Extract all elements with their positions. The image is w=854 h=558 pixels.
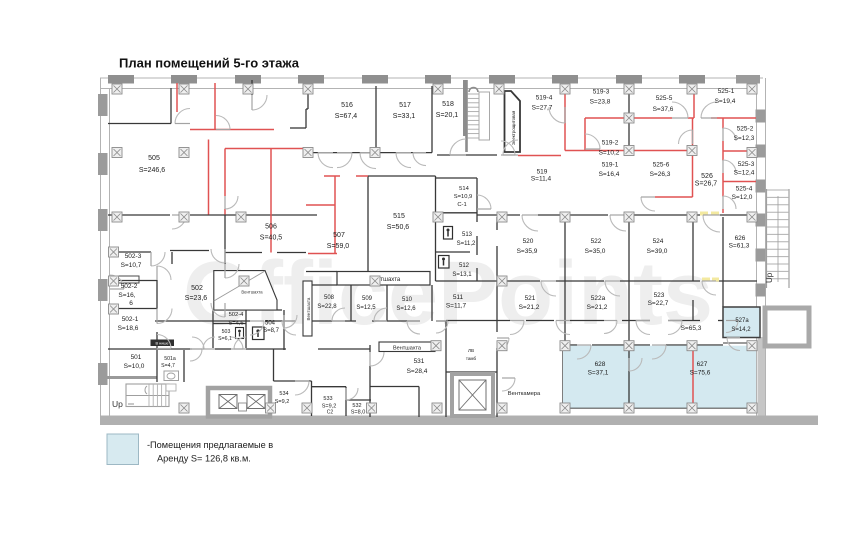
svg-text:532: 532	[352, 403, 361, 409]
svg-text:502-2: 502-2	[121, 283, 138, 290]
svg-text:Up: Up	[112, 399, 123, 409]
svg-text:S=37,1: S=37,1	[588, 370, 609, 377]
svg-text:522а: 522а	[591, 295, 606, 302]
svg-text:525-5: 525-5	[656, 95, 673, 102]
svg-text:525-2: 525-2	[737, 126, 754, 133]
svg-text:514: 514	[459, 186, 469, 192]
svg-text:S=14,2: S=14,2	[731, 327, 751, 333]
svg-text:S=37,6: S=37,6	[653, 106, 674, 113]
svg-text:510: 510	[402, 297, 413, 303]
svg-text:S=11,2: S=11,2	[457, 241, 476, 247]
svg-text:План помещений 5-го этажа: План помещений 5-го этажа	[119, 56, 300, 71]
svg-text:519-3: 519-3	[593, 89, 610, 96]
svg-text:S=8,0: S=8,0	[351, 410, 366, 416]
svg-text:527а: 527а	[735, 318, 749, 324]
svg-text:533: 533	[323, 396, 332, 402]
svg-text:S=39,0: S=39,0	[647, 248, 668, 255]
svg-text:531: 531	[414, 358, 425, 365]
svg-text:516: 516	[341, 102, 353, 109]
svg-text:519-4: 519-4	[536, 95, 553, 102]
svg-text:S=16,: S=16,	[118, 292, 135, 299]
svg-text:S=12,3: S=12,3	[734, 135, 755, 142]
svg-text:S=27,7: S=27,7	[532, 105, 553, 112]
svg-text:519: 519	[537, 169, 548, 176]
svg-text:S=6,1: S=6,1	[218, 336, 232, 342]
svg-text:S=40,5: S=40,5	[260, 235, 282, 242]
svg-text:S=10,2: S=10,2	[599, 150, 620, 157]
svg-text:521: 521	[525, 295, 536, 302]
svg-text:S=12,5: S=12,5	[356, 305, 376, 311]
svg-text:S=10,0: S=10,0	[124, 363, 145, 370]
svg-text:519-2: 519-2	[602, 140, 619, 147]
svg-text:ЛВ: ЛВ	[468, 348, 474, 353]
svg-text:506: 506	[265, 224, 277, 231]
svg-text:626: 626	[735, 235, 746, 242]
svg-text:525-4: 525-4	[736, 186, 753, 193]
svg-text:502-4: 502-4	[229, 312, 245, 318]
svg-text:S=12,4: S=12,4	[734, 170, 755, 177]
svg-text:S=26,3: S=26,3	[650, 171, 671, 178]
svg-text:522: 522	[591, 238, 602, 245]
svg-text:S=12,6: S=12,6	[396, 306, 416, 312]
svg-text:S=26,7: S=26,7	[695, 181, 717, 188]
svg-text:S=23,8: S=23,8	[590, 99, 611, 106]
svg-text:519-1: 519-1	[602, 162, 619, 169]
svg-text:627: 627	[697, 361, 708, 368]
svg-text:S=23,6: S=23,6	[185, 295, 207, 302]
svg-text:S=10,9: S=10,9	[454, 194, 473, 200]
svg-text:S=12,0: S=12,0	[732, 194, 753, 201]
svg-text:S=35,9: S=35,9	[517, 248, 538, 255]
svg-text:S=61,3: S=61,3	[729, 243, 750, 250]
svg-text:525-3: 525-3	[738, 161, 755, 168]
svg-text:523: 523	[654, 292, 665, 299]
svg-text:S=33,1: S=33,1	[393, 113, 415, 120]
svg-text:тамб: тамб	[466, 356, 477, 361]
svg-text:S=65,3: S=65,3	[681, 325, 702, 332]
svg-text:509: 509	[362, 296, 373, 302]
svg-text:S=75,6: S=75,6	[690, 370, 711, 377]
svg-text:S=21,2: S=21,2	[587, 304, 608, 311]
svg-text:S=67,4: S=67,4	[335, 113, 357, 120]
svg-text:S=4,6: S=4,6	[228, 321, 243, 327]
svg-text:S=8,7: S=8,7	[263, 328, 280, 334]
svg-text:В нише: В нише	[156, 342, 169, 346]
svg-text:Вентшахта: Вентшахта	[306, 297, 311, 320]
svg-text:С2: С2	[327, 410, 334, 416]
svg-text:524: 524	[653, 238, 664, 245]
svg-text:S=11,7: S=11,7	[446, 303, 467, 310]
svg-text:628: 628	[595, 361, 606, 368]
svg-text:S=50,6: S=50,6	[387, 224, 409, 231]
svg-text:S=11,4: S=11,4	[531, 176, 552, 183]
svg-text:S=35,0: S=35,0	[585, 248, 606, 255]
svg-text:504: 504	[265, 321, 276, 327]
svg-text:501: 501	[131, 354, 142, 361]
svg-text:S=10,7: S=10,7	[121, 262, 142, 269]
svg-text:S=13,1: S=13,1	[452, 272, 472, 278]
svg-text:525-6: 525-6	[653, 162, 670, 169]
svg-text:502-3: 502-3	[125, 253, 142, 260]
svg-text:Аренду S= 126,8 кв.м.: Аренду S= 126,8 кв.м.	[157, 454, 251, 464]
svg-text:502: 502	[191, 285, 203, 292]
svg-text:S=9,2: S=9,2	[275, 399, 290, 405]
svg-text:517: 517	[399, 102, 411, 109]
svg-text:Венткамера: Венткамера	[508, 391, 541, 397]
svg-text:S=16,4: S=16,4	[599, 171, 620, 178]
svg-text:508: 508	[324, 295, 335, 301]
svg-text:С-1: С-1	[457, 202, 466, 208]
svg-text:S=22,7: S=22,7	[648, 300, 669, 307]
svg-text:Вентшахта: Вентшахта	[393, 346, 422, 352]
svg-text:513: 513	[462, 232, 473, 238]
svg-text:520: 520	[523, 238, 534, 245]
svg-text:S=22,8: S=22,8	[317, 304, 337, 310]
svg-text:503: 503	[222, 329, 231, 335]
svg-text:505: 505	[148, 155, 160, 162]
svg-text:-Помещения предлагаемые в: -Помещения предлагаемые в	[147, 440, 273, 450]
svg-text:Up: Up	[765, 272, 774, 283]
svg-text:534: 534	[279, 391, 288, 397]
svg-text:S=59,0: S=59,0	[327, 243, 349, 250]
svg-text:6: 6	[129, 300, 133, 307]
svg-text:526: 526	[701, 173, 713, 180]
svg-text:525-1: 525-1	[718, 88, 735, 95]
svg-text:501а: 501а	[164, 356, 176, 362]
svg-text:S=28,4: S=28,4	[407, 368, 428, 375]
svg-text:Вентшахта: Вентшахта	[241, 290, 263, 295]
svg-text:512: 512	[459, 263, 470, 269]
svg-text:507: 507	[333, 232, 345, 239]
svg-text:S=246,6: S=246,6	[139, 167, 165, 174]
svg-text:S=4,7: S=4,7	[161, 363, 175, 369]
svg-text:511: 511	[453, 294, 464, 301]
svg-text:S=21,2: S=21,2	[519, 304, 540, 311]
svg-text:502-1: 502-1	[122, 316, 139, 323]
svg-text:S=20,1: S=20,1	[436, 112, 458, 119]
svg-text:S=19,4: S=19,4	[715, 98, 736, 105]
svg-text:515: 515	[393, 213, 405, 220]
svg-text:518: 518	[442, 101, 454, 108]
svg-text:S=18,6: S=18,6	[118, 325, 139, 332]
